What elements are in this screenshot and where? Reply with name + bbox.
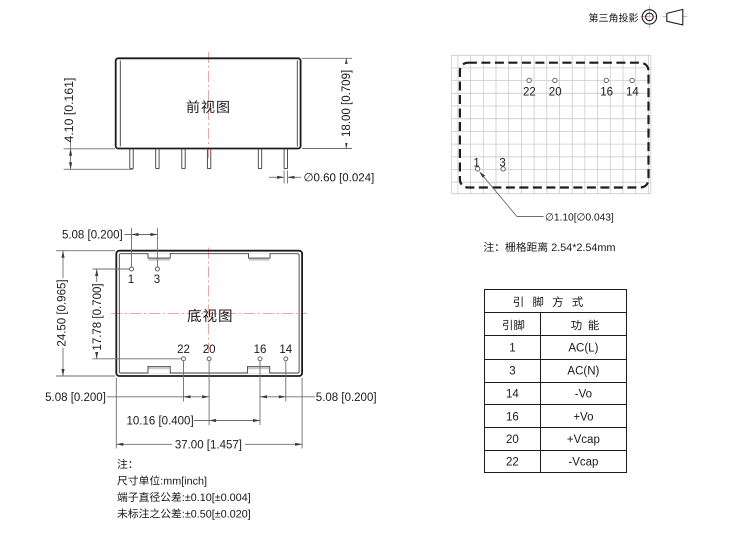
svg-text:1: 1 — [128, 274, 134, 286]
svg-text:1: 1 — [473, 158, 479, 170]
svg-text:17.78 [0.700]: 17.78 [0.700] — [92, 283, 104, 350]
svg-text:20: 20 — [203, 344, 216, 356]
svg-text:+Vo: +Vo — [573, 411, 593, 423]
svg-text:37.00 [1.457]: 37.00 [1.457] — [175, 439, 242, 451]
svg-text:AC(L): AC(L) — [568, 342, 598, 354]
svg-text:3: 3 — [499, 158, 505, 170]
svg-text:-Vo: -Vo — [575, 389, 592, 401]
svg-text:5.08 [0.200]: 5.08 [0.200] — [45, 392, 106, 404]
svg-text:16: 16 — [600, 87, 613, 99]
svg-text:5.08 [0.200]: 5.08 [0.200] — [316, 392, 377, 404]
svg-text:22: 22 — [523, 87, 536, 99]
svg-text:AC(N): AC(N) — [567, 366, 599, 378]
svg-text:-Vcap: -Vcap — [568, 456, 598, 468]
svg-text:+Vcap: +Vcap — [567, 434, 600, 446]
svg-text:5.08 [0.200]: 5.08 [0.200] — [62, 230, 123, 242]
svg-text:14: 14 — [279, 344, 292, 356]
svg-text:14: 14 — [626, 87, 639, 99]
svg-text:16: 16 — [506, 411, 519, 423]
svg-text:3: 3 — [154, 274, 160, 286]
svg-text:14: 14 — [506, 389, 519, 401]
svg-text:20: 20 — [506, 434, 519, 446]
svg-text:18.00 [0.709]: 18.00 [0.709] — [341, 70, 353, 137]
svg-text:22: 22 — [506, 456, 519, 468]
svg-text:20: 20 — [549, 87, 562, 99]
svg-text:24.50 [0.965]: 24.50 [0.965] — [56, 279, 68, 346]
svg-text:1: 1 — [509, 342, 515, 354]
svg-text:16: 16 — [254, 344, 267, 356]
svg-text:4.10 [0.161]: 4.10 [0.161] — [62, 78, 76, 143]
svg-text:10.16 [0.400]: 10.16 [0.400] — [127, 416, 194, 428]
svg-text:3: 3 — [509, 366, 515, 378]
svg-text:22: 22 — [177, 344, 190, 356]
